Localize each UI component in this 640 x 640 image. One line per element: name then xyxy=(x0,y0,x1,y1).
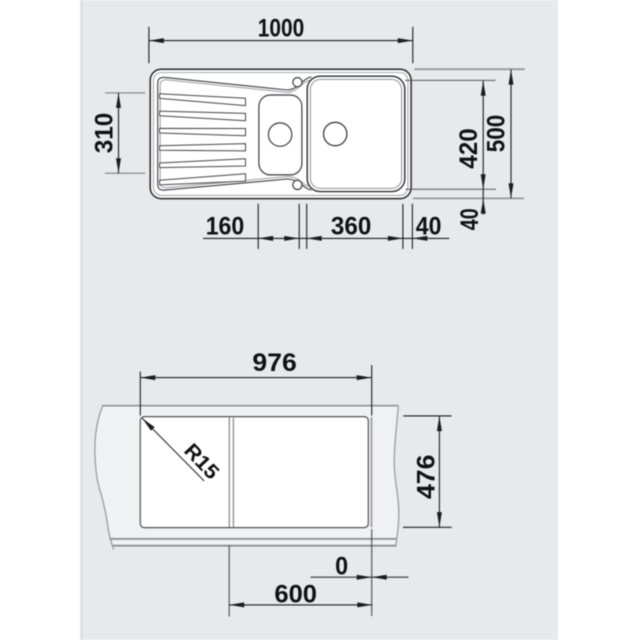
svg-text:420: 420 xyxy=(455,128,483,169)
svg-text:976: 976 xyxy=(252,349,296,377)
svg-text:500: 500 xyxy=(483,115,511,153)
svg-text:476: 476 xyxy=(412,455,440,500)
svg-text:0: 0 xyxy=(335,553,348,581)
svg-text:310: 310 xyxy=(91,113,119,154)
svg-text:40: 40 xyxy=(416,212,442,240)
svg-text:360: 360 xyxy=(331,213,371,241)
svg-text:1000: 1000 xyxy=(258,14,305,42)
svg-text:600: 600 xyxy=(274,581,317,609)
svg-text:160: 160 xyxy=(206,213,245,241)
svg-text:40: 40 xyxy=(456,208,484,230)
